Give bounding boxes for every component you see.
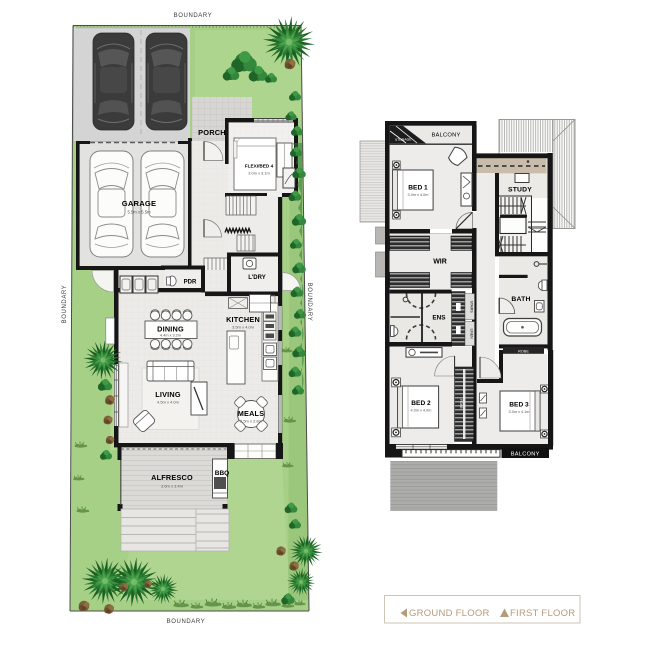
- svg-text:BATH: BATH: [511, 296, 530, 303]
- svg-text:4.5m x 4.0m: 4.5m x 4.0m: [157, 400, 180, 405]
- svg-text:FIRST FLOOR: FIRST FLOOR: [510, 608, 575, 619]
- svg-text:BED 1: BED 1: [408, 185, 428, 192]
- svg-text:5.5m x 5.5m: 5.5m x 5.5m: [127, 210, 151, 215]
- svg-text:3.0m x 3.1m: 3.0m x 3.1m: [248, 171, 269, 176]
- svg-text:BALCONY: BALCONY: [431, 133, 460, 139]
- svg-text:LINEN: LINEN: [469, 329, 473, 340]
- svg-text:STUDY: STUDY: [508, 187, 532, 194]
- svg-text:STAIRS: STAIRS: [469, 301, 473, 314]
- svg-text:BED 3: BED 3: [509, 402, 529, 409]
- svg-text:DINING: DINING: [157, 325, 184, 334]
- svg-text:STORAGE: STORAGE: [395, 137, 412, 142]
- svg-text:ROBE: ROBE: [518, 350, 529, 354]
- svg-text:3.0m x 4.1m: 3.0m x 4.1m: [509, 410, 530, 414]
- svg-text:BED 2: BED 2: [411, 400, 431, 407]
- svg-text:2.5m x 2.8m: 2.5m x 2.8m: [240, 419, 263, 424]
- svg-text:4.0m x 4.0m: 4.0m x 4.0m: [411, 409, 432, 413]
- svg-text:3.0m x 4.0m: 3.0m x 4.0m: [408, 193, 429, 197]
- svg-text:3.6m x 3.4m: 3.6m x 3.4m: [161, 484, 184, 489]
- svg-text:BBQ: BBQ: [215, 470, 229, 477]
- svg-text:ROBE: ROBE: [459, 399, 463, 409]
- svg-text:BOUNDARY: BOUNDARY: [174, 13, 213, 19]
- svg-text:FLEXI/BED 4: FLEXI/BED 4: [245, 164, 274, 169]
- svg-text:WIR: WIR: [433, 259, 447, 266]
- svg-text:BOUNDARY: BOUNDARY: [62, 285, 68, 324]
- svg-text:LIVING: LIVING: [155, 390, 181, 399]
- svg-text:PORCH: PORCH: [198, 128, 226, 137]
- svg-text:3.5m x 4.0m: 3.5m x 4.0m: [232, 325, 255, 330]
- svg-text:BOUNDARY: BOUNDARY: [306, 283, 312, 322]
- svg-text:GROUND FLOOR: GROUND FLOOR: [409, 608, 490, 619]
- svg-text:GARAGE: GARAGE: [122, 199, 157, 208]
- svg-text:MEALS: MEALS: [238, 409, 265, 418]
- svg-text:KITCHEN: KITCHEN: [226, 315, 260, 324]
- svg-text:PDR: PDR: [184, 280, 197, 286]
- svg-text:ALFRESCO: ALFRESCO: [151, 473, 193, 482]
- svg-text:ENS: ENS: [432, 315, 446, 322]
- svg-text:L'DRY: L'DRY: [248, 275, 266, 281]
- svg-text:4.4m x 3.2m: 4.4m x 3.2m: [160, 334, 181, 338]
- svg-text:BOUNDARY: BOUNDARY: [167, 619, 206, 625]
- svg-text:BALCONY: BALCONY: [511, 451, 540, 457]
